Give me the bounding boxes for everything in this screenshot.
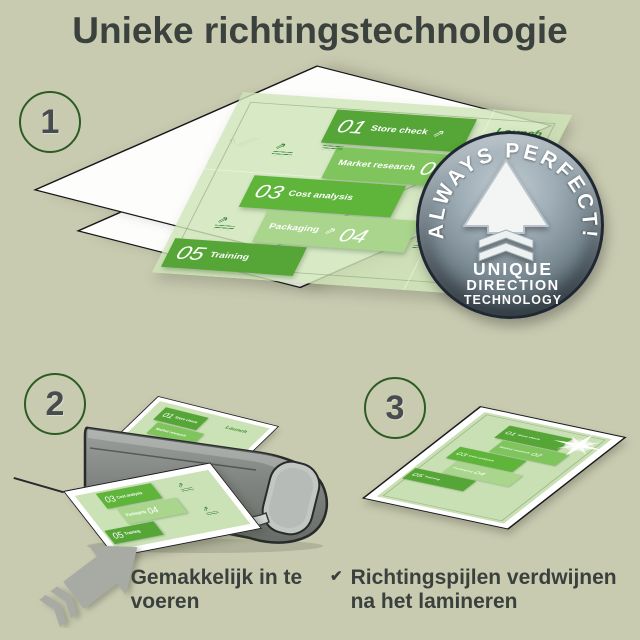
badge-line1: UNIQUE — [473, 259, 553, 279]
step-3-circle: 3 — [364, 377, 426, 439]
step-number: 3 — [386, 389, 405, 428]
badge-line2: DIRECTION — [466, 278, 559, 294]
checklist-item-arrows-disappear: ✔ Richtingspijlen verdwijnen na het lami… — [330, 566, 630, 613]
checklist-text: Richtingspijlen verdwijnen na het lamine… — [351, 566, 630, 613]
checklist-item-easy-feed: ✔ Gemakkelijk in te voeren — [110, 566, 310, 613]
badge-line3: TECHNOLOGY — [464, 293, 562, 307]
checkmark-icon: ✔ — [110, 566, 123, 586]
always-perfect-badge: ALWAYS PERFECT! UNIQUE DIRECTION TECHNOL… — [416, 131, 604, 319]
badge-graphic: ALWAYS PERFECT! UNIQUE DIRECTION TECHNOL… — [419, 134, 607, 322]
step-1-circle: 1 — [19, 91, 81, 153]
step-number: 1 — [41, 103, 60, 142]
checkmark-icon: ✔ — [330, 566, 343, 586]
product-infographic: { "title": "Unieke richtingstechnologie"… — [0, 0, 640, 640]
up-arrow-icon — [464, 160, 548, 261]
checklist-text: Gemakkelijk in te voeren — [131, 566, 310, 613]
